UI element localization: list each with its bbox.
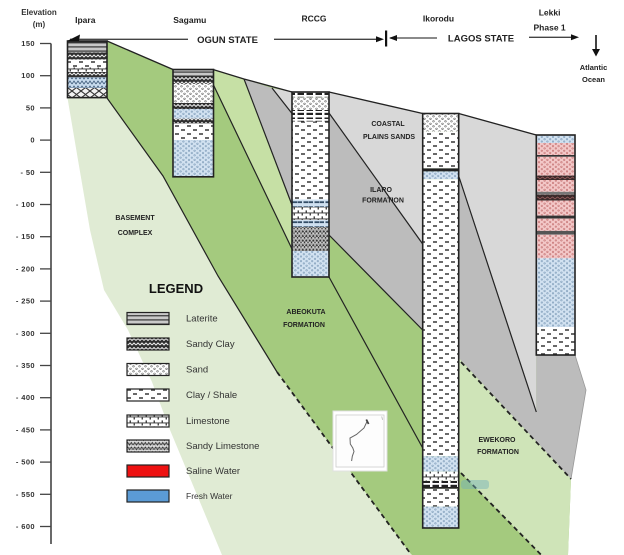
svg-text:Ocean: Ocean <box>582 75 605 84</box>
svg-text:150: 150 <box>21 39 35 48</box>
svg-text:Fresh Water: Fresh Water <box>186 491 233 501</box>
svg-text:Sand: Sand <box>186 365 208 376</box>
svg-text:PLAINS SANDS: PLAINS SANDS <box>363 134 415 141</box>
svg-text:Elevation: Elevation <box>21 8 57 17</box>
svg-text:FORMATION: FORMATION <box>477 449 519 456</box>
svg-text:- 100: - 100 <box>16 200 35 209</box>
svg-text:Sandy Limestone: Sandy Limestone <box>186 441 259 452</box>
svg-text:Limestone: Limestone <box>186 416 230 427</box>
svg-text:LEGEND: LEGEND <box>149 281 203 296</box>
svg-text:- 450: - 450 <box>16 425 35 434</box>
svg-text:- 400: - 400 <box>16 393 35 402</box>
svg-text:- 550: - 550 <box>16 490 35 499</box>
svg-text:- 350: - 350 <box>16 361 35 370</box>
svg-text:- 600: - 600 <box>16 522 35 531</box>
svg-text:Saline Water: Saline Water <box>186 466 240 477</box>
svg-text:RCCG: RCCG <box>301 14 326 24</box>
svg-text:OGUN STATE: OGUN STATE <box>197 35 258 46</box>
svg-text:COMPLEX: COMPLEX <box>118 230 153 237</box>
svg-text:EWEKORO: EWEKORO <box>479 437 517 444</box>
svg-text:BASEMENT: BASEMENT <box>115 215 155 222</box>
svg-text:- 50: - 50 <box>20 168 35 177</box>
svg-text:- 150: - 150 <box>16 232 35 241</box>
svg-text:Phase 1: Phase 1 <box>534 23 566 33</box>
svg-text:Ikorodu: Ikorodu <box>423 14 454 24</box>
svg-text:Atlantic: Atlantic <box>580 63 608 72</box>
svg-text:50: 50 <box>26 103 35 112</box>
svg-text:- 200: - 200 <box>16 264 35 273</box>
svg-text:Sagamu: Sagamu <box>173 15 206 25</box>
svg-text:ABEOKUTA: ABEOKUTA <box>286 309 325 316</box>
svg-text:- 250: - 250 <box>16 297 35 306</box>
svg-text:COASTAL: COASTAL <box>371 121 405 128</box>
svg-text:FORMATION: FORMATION <box>362 198 404 205</box>
svg-text:Lekki: Lekki <box>539 8 561 18</box>
svg-text:- 500: - 500 <box>16 458 35 467</box>
svg-text:FORMATION: FORMATION <box>283 322 325 329</box>
svg-text:Ipara: Ipara <box>75 15 96 25</box>
svg-text:Sandy Clay: Sandy Clay <box>186 339 235 350</box>
svg-text:0: 0 <box>30 136 35 145</box>
svg-text:Clay / Shale: Clay / Shale <box>186 390 237 401</box>
svg-text:- 300: - 300 <box>16 329 35 338</box>
svg-text:LAGOS STATE: LAGOS STATE <box>448 34 514 45</box>
svg-text:100: 100 <box>21 71 35 80</box>
svg-text:(m): (m) <box>33 20 46 29</box>
svg-text:Laterite: Laterite <box>186 314 218 325</box>
svg-text:ILARO: ILARO <box>370 187 392 194</box>
